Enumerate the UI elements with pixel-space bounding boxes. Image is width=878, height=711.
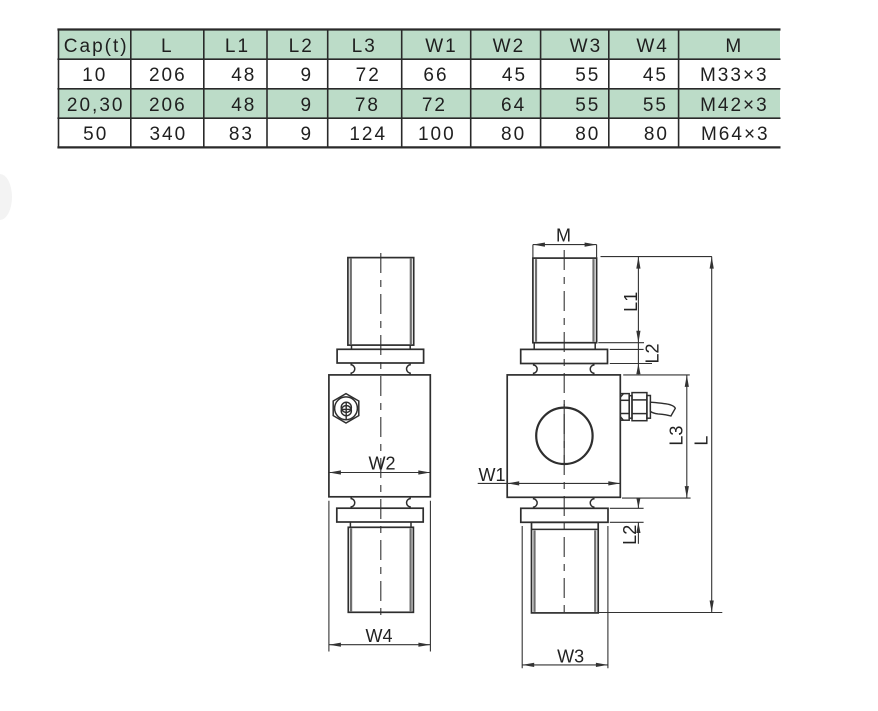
svg-text:W3: W3 <box>570 36 603 57</box>
svg-text:206: 206 <box>149 65 187 86</box>
svg-text:L3: L3 <box>352 36 377 57</box>
svg-text:L: L <box>161 36 174 57</box>
svg-text:100: 100 <box>418 124 456 145</box>
svg-text:W3: W3 <box>557 646 584 666</box>
svg-text:9: 9 <box>301 124 314 145</box>
svg-text:W2: W2 <box>369 454 396 474</box>
svg-text:Cap(t): Cap(t) <box>64 36 129 57</box>
svg-text:55: 55 <box>643 95 668 116</box>
svg-text:45: 45 <box>502 65 527 86</box>
svg-text:M64×3: M64×3 <box>701 124 770 145</box>
svg-text:124: 124 <box>349 124 387 145</box>
svg-text:50: 50 <box>83 124 108 145</box>
svg-text:48: 48 <box>231 95 256 116</box>
svg-text:W4: W4 <box>366 626 393 646</box>
svg-text:45: 45 <box>643 65 668 86</box>
svg-text:L2: L2 <box>289 36 314 57</box>
svg-text:55: 55 <box>575 95 600 116</box>
svg-text:80: 80 <box>644 124 669 145</box>
svg-text:55: 55 <box>575 65 600 86</box>
svg-text:48: 48 <box>231 65 256 86</box>
svg-text:W4: W4 <box>636 36 669 57</box>
svg-text:9: 9 <box>301 65 314 86</box>
svg-text:W1: W1 <box>479 465 506 485</box>
svg-text:64: 64 <box>501 95 526 116</box>
svg-text:M: M <box>556 226 571 246</box>
svg-text:10: 10 <box>82 65 107 86</box>
svg-text:M33×3: M33×3 <box>700 65 769 86</box>
svg-text:L2: L2 <box>620 525 640 545</box>
svg-text:M42×3: M42×3 <box>700 95 769 116</box>
svg-text:340: 340 <box>149 124 187 145</box>
svg-text:20,30: 20,30 <box>67 95 125 116</box>
svg-text:72: 72 <box>356 65 381 86</box>
svg-text:M: M <box>725 36 743 57</box>
svg-text:78: 78 <box>355 95 380 116</box>
svg-text:206: 206 <box>149 95 187 116</box>
svg-text:W2: W2 <box>493 36 526 57</box>
svg-text:L2: L2 <box>643 343 663 363</box>
svg-text:9: 9 <box>301 95 314 116</box>
svg-text:80: 80 <box>501 124 526 145</box>
svg-text:80: 80 <box>575 124 600 145</box>
svg-text:66: 66 <box>423 65 448 86</box>
svg-text:W1: W1 <box>425 36 458 57</box>
svg-text:83: 83 <box>229 124 254 145</box>
svg-text:72: 72 <box>422 95 447 116</box>
svg-text:L1: L1 <box>621 292 641 312</box>
svg-text:L1: L1 <box>225 36 250 57</box>
svg-text:L3: L3 <box>666 426 686 446</box>
svg-text:L: L <box>691 436 711 446</box>
